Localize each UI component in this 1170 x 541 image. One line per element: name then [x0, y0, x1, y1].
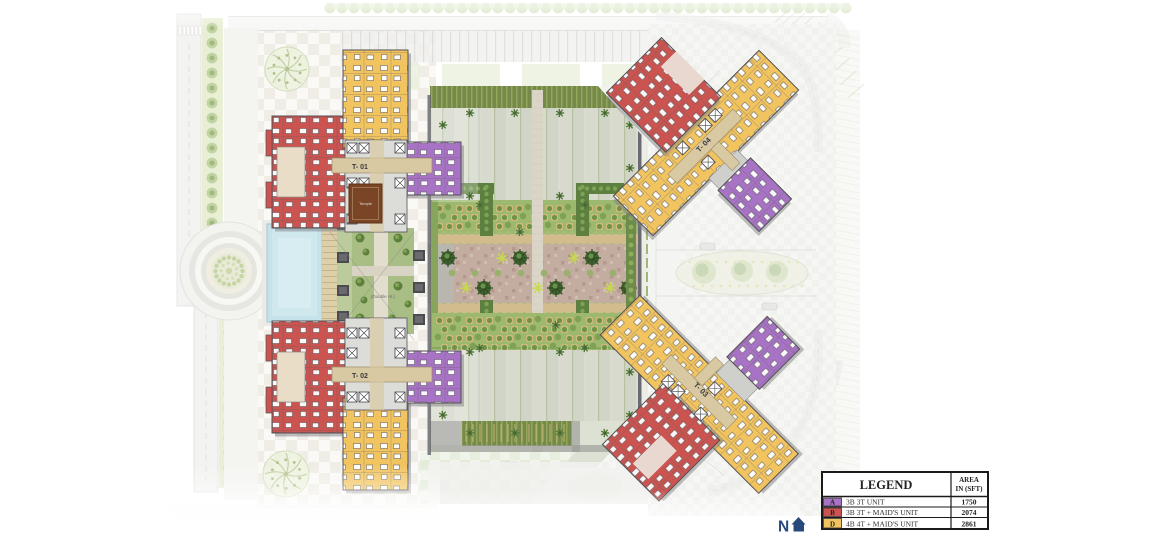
svg-text:1750: 1750	[962, 497, 977, 506]
svg-text:2861: 2861	[962, 519, 977, 528]
svg-text:D: D	[830, 520, 835, 528]
svg-text:(Double Ht.): (Double Ht.)	[371, 294, 396, 299]
svg-text:IN (SFT): IN (SFT)	[955, 485, 983, 493]
svg-text:AREA: AREA	[959, 476, 979, 484]
svg-text:T- 01: T- 01	[352, 164, 368, 171]
svg-text:3B 3T UNIT: 3B 3T UNIT	[846, 497, 885, 506]
svg-text:N: N	[778, 519, 789, 536]
svg-text:4B 4T + MAID'S UNIT: 4B 4T + MAID'S UNIT	[846, 519, 919, 528]
svg-text:B: B	[830, 509, 835, 517]
svg-text:2074: 2074	[962, 508, 977, 517]
svg-text:3B 3T + MAID'S UNIT: 3B 3T + MAID'S UNIT	[846, 508, 919, 517]
svg-text:LEGEND: LEGEND	[860, 478, 913, 492]
svg-text:Temple: Temple	[359, 201, 373, 206]
svg-text:T- 02: T- 02	[352, 373, 368, 380]
svg-text:A: A	[830, 498, 835, 506]
